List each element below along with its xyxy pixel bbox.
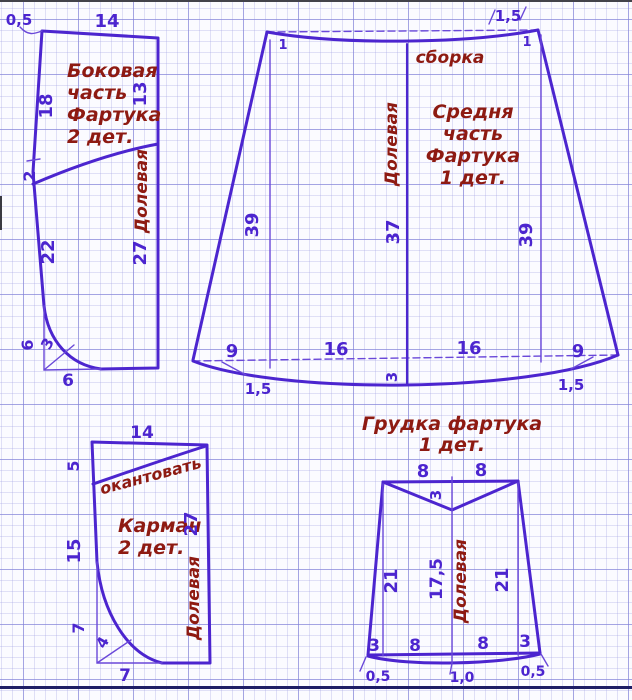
middle-title-line-4: 1 дет. [440,167,506,189]
side-dim-right-upper: 13 [130,81,151,106]
middle-tick-left: 1 [278,38,287,53]
bib-dim-bottom-2: 8 [409,636,421,656]
middle-right-edge [538,30,618,355]
middle-grain-label: Долевая [382,102,402,187]
bib-dim-top-right: 8 [475,460,488,481]
pocket-binding-label: окантовать [98,453,204,498]
pocket-dim-left-mid: 15 [64,538,85,563]
middle-bottom-line [193,355,618,361]
bib-dim-bottom-1: 3 [368,636,380,656]
sheet-top-edge [0,0,632,2]
middle-left-edge [193,32,267,360]
middle-dim-center-height: 37 [383,219,404,244]
middle-title-line-3: Фартука [426,145,520,167]
bib-right-edge [518,481,540,653]
bib-grain-label: Долевая [451,539,471,624]
middle-title-line-1: Средня [432,101,513,123]
pattern-drawing: 0,5 14 18 13 2 22 27 Долевая 6 3 6 Боков… [0,0,632,700]
side-piece: 0,5 14 18 13 2 22 27 Долевая 6 3 6 Боков… [6,11,162,391]
bib-title-line-1: Грудка фартука [362,413,542,435]
side-title-line-3: Фартука [67,104,161,126]
bib-dim-center: 17,5 [427,558,447,600]
pattern-sheet: 0,5 14 18 13 2 22 27 Долевая 6 3 6 Боков… [0,0,632,700]
pocket-dim-corner-side: 7 [69,622,88,633]
side-piece-left-tick [27,159,40,161]
sheet-left-edge-mark [0,196,2,230]
sheet-bottom-rule [0,686,632,689]
side-title-line-1: Боковая [67,60,158,82]
middle-gather-label: сборка [416,48,485,68]
middle-dim-bottom-2: 16 [323,339,348,360]
middle-top-line [267,30,538,32]
side-dim-left-upper: 18 [36,93,57,118]
side-title-line-4: 2 дет. [67,126,133,148]
middle-dim-left-height: 39 [242,212,263,237]
bib-title-line-2: 1 дет. [419,434,485,456]
middle-dim-seam-top: 1,5 [495,7,522,25]
middle-title-line-2: часть [443,123,503,145]
middle-tick-right: 1 [522,35,531,50]
side-dim-hem-side: 6 [18,339,37,350]
middle-piece: 1 1 1,5 сборка Средня часть Фартука 1 де… [193,7,618,398]
middle-dim-bottom-1: 9 [226,341,239,362]
middle-dim-hem-right: 1,5 [558,376,585,394]
bib-dim-right: 21 [492,567,513,592]
pocket-title-line-2: 2 дет. [118,537,184,559]
pocket-dim-corner-bottom: 7 [119,666,131,686]
side-dim-left-mid: 2 [20,170,39,181]
side-dim-left-lower: 22 [38,239,59,264]
pocket-dim-left-top: 5 [64,460,83,471]
bib-dim-notch: 3 [427,490,445,500]
middle-dim-bottom-3: 16 [456,338,481,359]
side-grain-label: Долевая [132,149,152,234]
bib-bottom-line [368,653,540,655]
bib-top-edge [383,481,518,482]
pocket-dim-corner-diag: 4 [92,633,113,651]
middle-dim-right-height: 39 [516,222,537,247]
side-dim-top: 14 [94,11,119,32]
pocket-piece: 14 5 окантовать Карман 2 дет. 27 15 Доле… [64,423,210,686]
bib-dim-top-left: 8 [417,461,430,482]
pocket-dim-right: 27 [181,511,202,536]
bib-dim-ease-1: 0,5 [366,669,391,685]
bib-dim-bottom-3: 8 [477,634,489,654]
side-dim-seam: 0,5 [6,11,33,29]
pocket-grain-label: Долевая [184,556,204,641]
side-dim-right-lower: 27 [130,240,151,265]
pocket-dim-top: 14 [130,423,154,443]
bib-v-notch [383,481,518,510]
bib-dim-left: 21 [381,568,402,593]
side-dim-hem-bottom: 6 [62,371,74,391]
middle-dim-bottom-4: 9 [572,341,585,362]
bib-dim-ease-3: 0,5 [521,664,546,680]
bib-piece: Грудка фартука 1 дет. 8 8 3 21 17,5 Доле… [360,413,548,686]
bib-dim-ease-2: 1,0 [450,670,475,686]
bib-dim-bottom-4: 3 [519,632,531,652]
side-title-line-2: часть [67,82,127,104]
middle-dim-hem-left: 1,5 [245,380,272,398]
middle-dim-hem-center: 3 [383,372,401,382]
